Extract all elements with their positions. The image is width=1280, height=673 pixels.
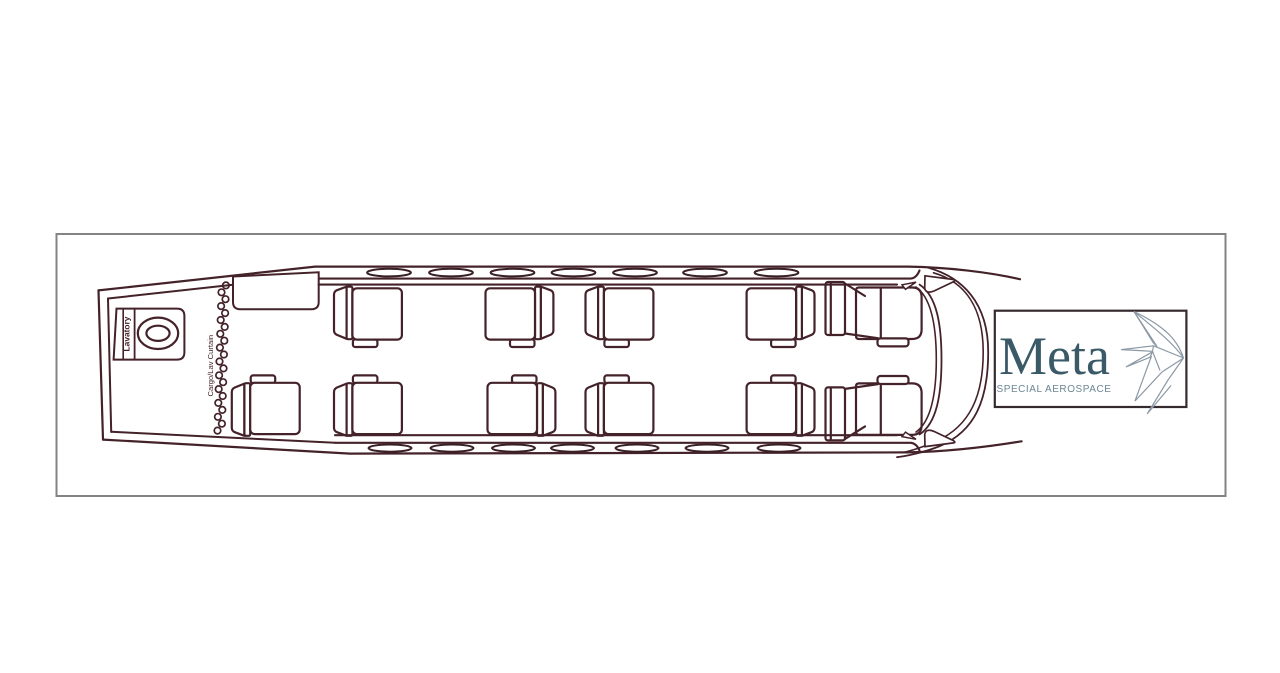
svg-text:Meta: Meta bbox=[999, 326, 1110, 386]
svg-text:Cargo/Lav Curtain: Cargo/Lav Curtain bbox=[206, 335, 215, 397]
svg-text:Lavatory: Lavatory bbox=[121, 316, 131, 351]
svg-text:SPECIAL AEROSPACE: SPECIAL AEROSPACE bbox=[997, 384, 1112, 395]
